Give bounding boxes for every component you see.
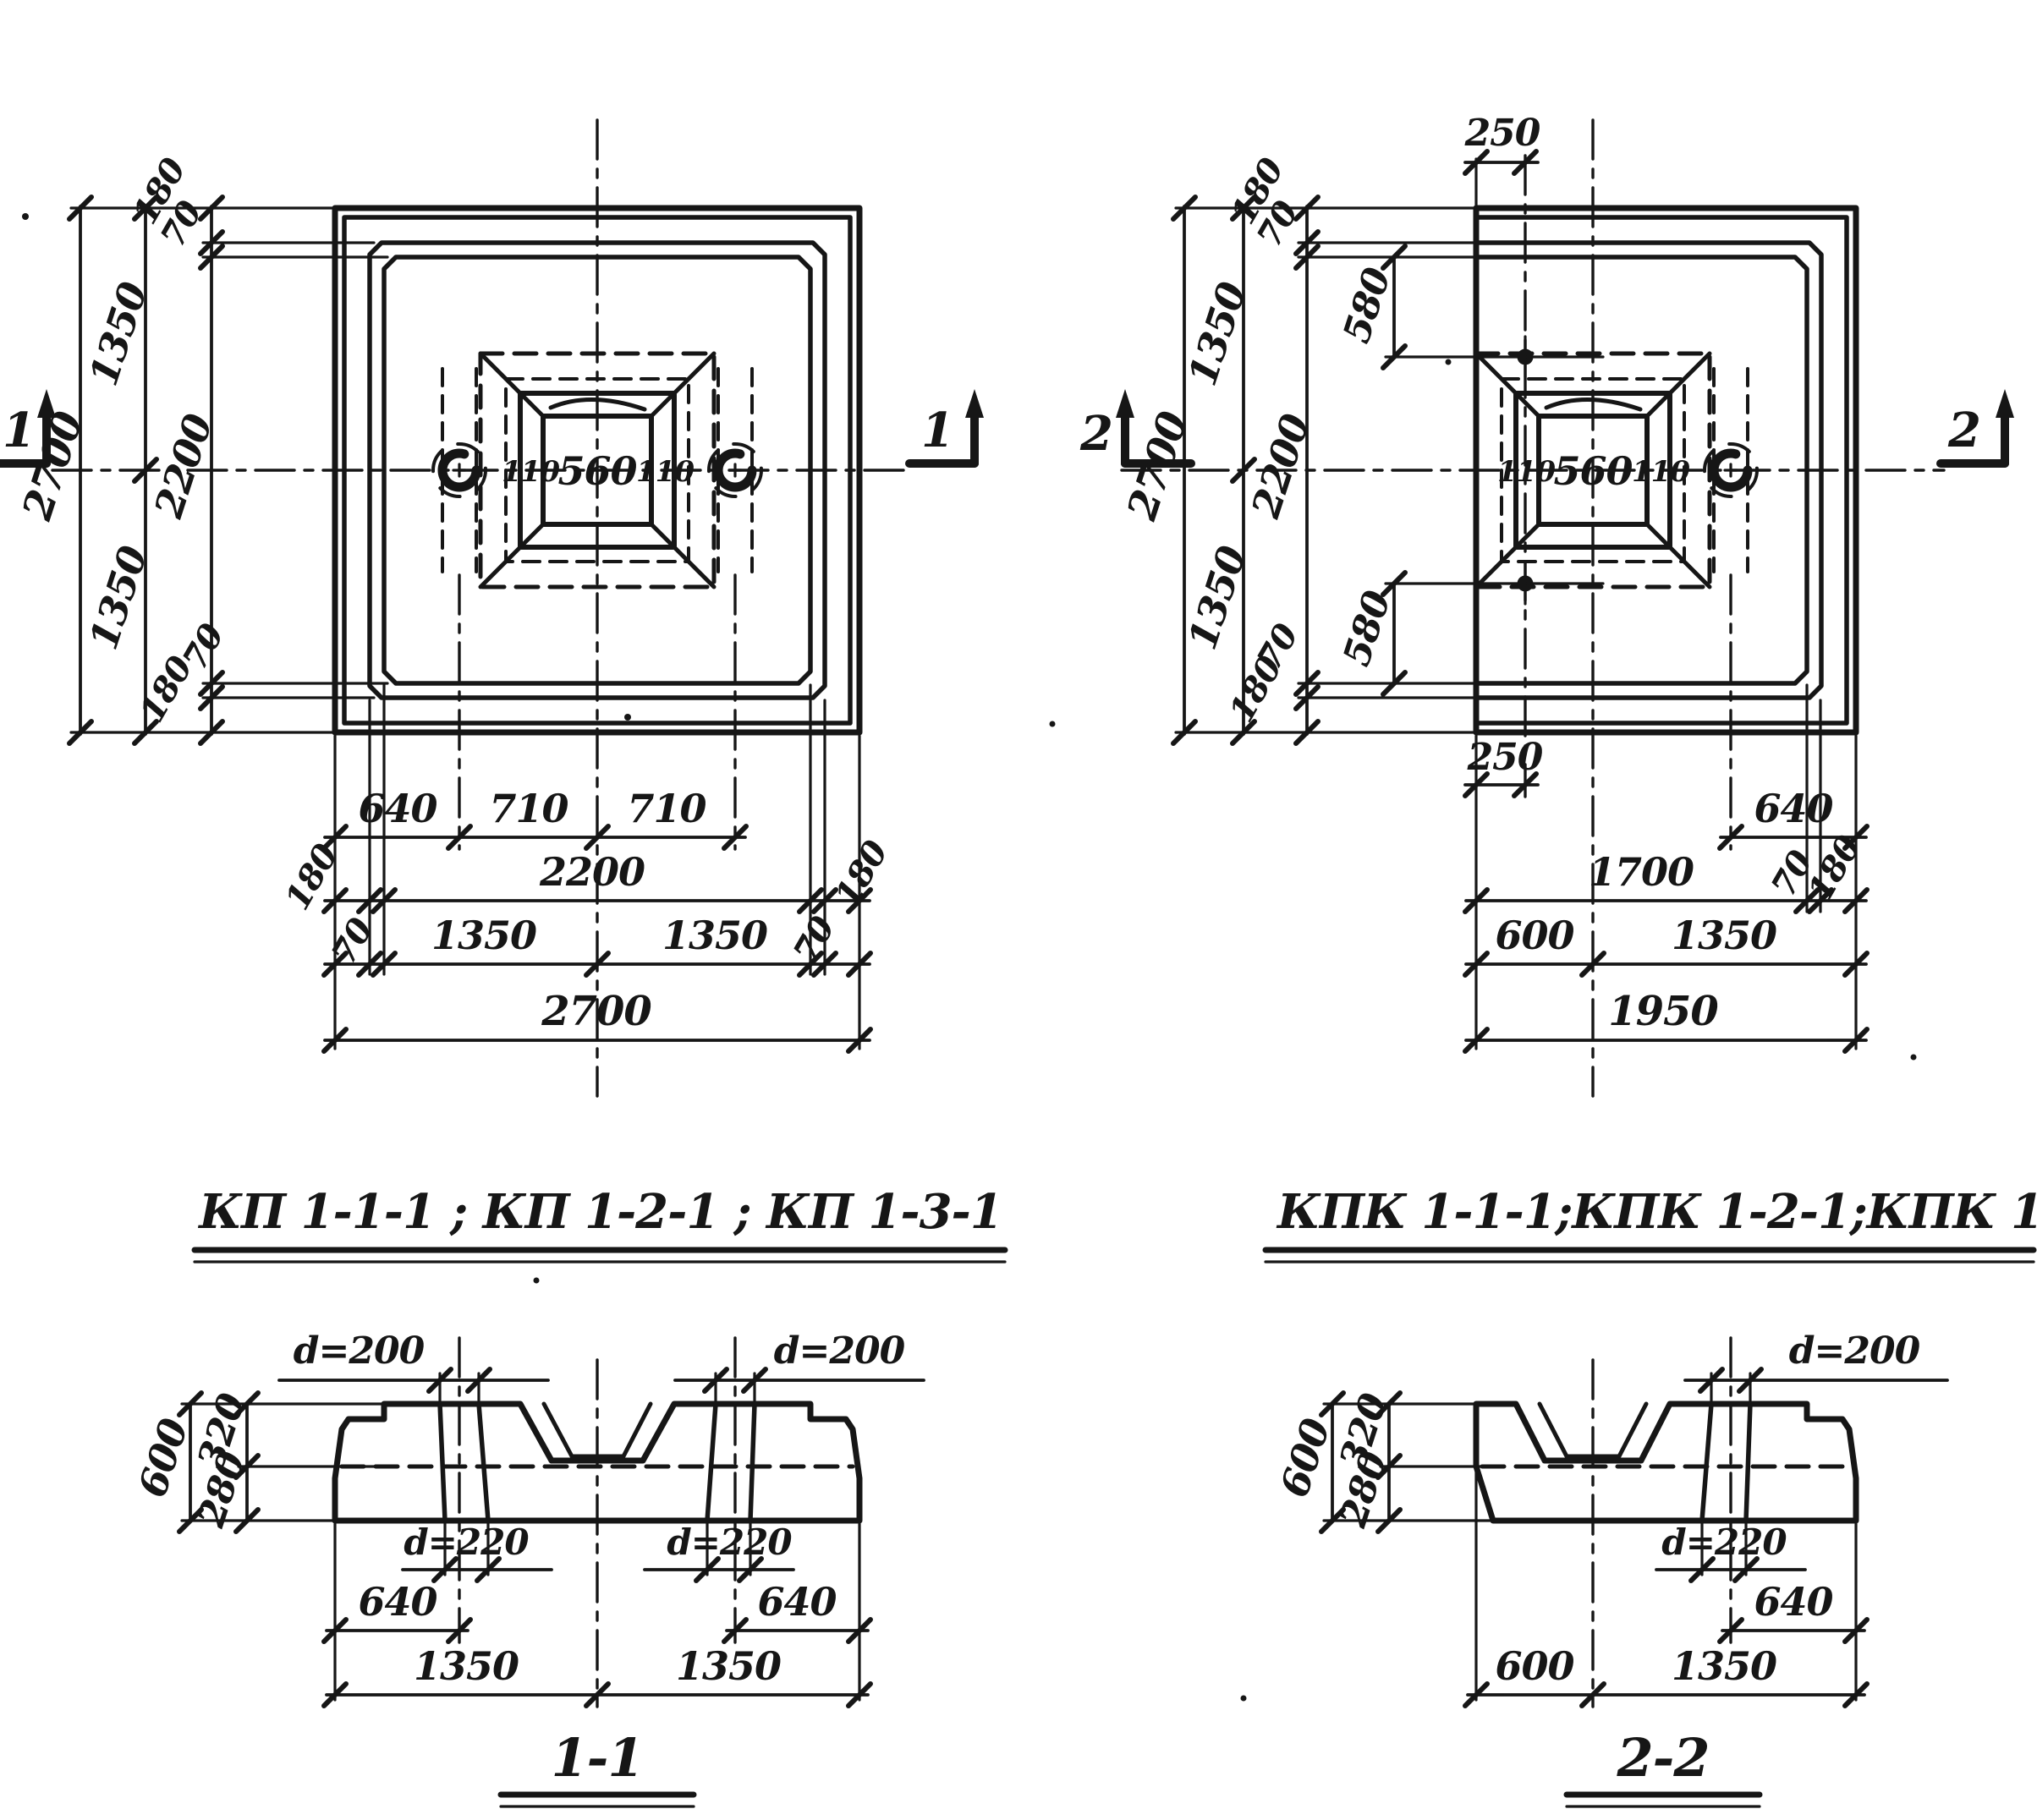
s11-dim-640-left: 640 xyxy=(358,1579,437,1625)
s11-height-dims: 600 320 280 xyxy=(129,1388,398,1533)
s22-loop-pipe xyxy=(1702,1404,1750,1521)
plan-kp: 110 560 110 1 1 xyxy=(0,120,984,1096)
s11-dim-d200-left: d=200 xyxy=(294,1329,426,1373)
plan-kpk: 110 560 110 2 2 250 xyxy=(1079,112,2014,1096)
section-1-1: d=200 d=200 d=220 d=220 600 xyxy=(129,1329,924,1806)
s11-dim-640-right: 640 xyxy=(757,1579,837,1625)
kp-title: КП 1-1-1 ; КП 1-2-1 ; КП 1-3-1 xyxy=(197,1184,1002,1240)
kpk-dim-overall-width: 1950 xyxy=(1608,988,1718,1035)
s22-label: 2-2 xyxy=(1567,1727,1760,1806)
kp-section-mark-left: 1 xyxy=(3,403,35,458)
kpk-lifting-loop xyxy=(1705,369,1757,572)
kpk-socket-wall-left-dim: 110 xyxy=(1497,455,1556,489)
kp-dim-70-right: 70 xyxy=(786,909,843,969)
s22-bottom-dims: 640 600 1350 xyxy=(1465,1472,1867,1706)
kp-left-dimensions: 2700 1350 1350 2200 180 70 70 180 xyxy=(14,151,387,743)
s22-dim-d200: d=200 xyxy=(1789,1329,1921,1373)
foundation-pad-drawing: 110 560 110 1 1 xyxy=(0,0,2037,1820)
s22-height-dims: 600 320 280 xyxy=(1271,1388,1497,1533)
kp-lifting-loop-left xyxy=(433,369,486,572)
kpk-bottom-dimensions: 250 640 1700 70 180 600 1350 1950 xyxy=(1465,685,1869,1051)
kpk-dim-580-bottom: 580 xyxy=(1335,585,1399,672)
section-2-2: d=200 d=220 600 320 280 640 xyxy=(1271,1329,1947,1806)
kpk-dim-580-top: 580 xyxy=(1335,262,1399,348)
kp-dim-640: 640 xyxy=(358,786,437,831)
kpk-socket-width-dim: 560 xyxy=(1553,448,1633,494)
kp-lifting-loop-right xyxy=(709,369,761,572)
kpk-section-markers: 2 2 xyxy=(1079,389,2014,463)
scan-specks xyxy=(22,213,1917,1702)
s11-dim-1350-left: 1350 xyxy=(414,1643,519,1689)
s22-dim-1350: 1350 xyxy=(1672,1643,1777,1689)
s22-dim-d220: d=220 xyxy=(1661,1521,1787,1563)
s22-section-label: 2-2 xyxy=(1616,1727,1709,1789)
kpk-dim-1350: 1350 xyxy=(1672,913,1777,958)
s22-dim-640: 640 xyxy=(1754,1579,1833,1625)
s22-body-outline xyxy=(1476,1404,1856,1521)
kp-dim-710-right: 710 xyxy=(627,786,706,831)
s22-dim-600-height: 600 xyxy=(1271,1413,1339,1503)
kp-dim-1350-left: 1350 xyxy=(431,913,537,958)
kp-socket-width-dim: 560 xyxy=(557,448,637,494)
s22-pipe-top-dim: d=200 xyxy=(1685,1329,1947,1401)
kpk-title: КПК 1-1-1;КПК 1-2-1;КПК 1-3-1 xyxy=(1276,1184,2037,1240)
kp-socket-wall-right-dim: 110 xyxy=(636,455,695,489)
s11-label: 1-1 xyxy=(501,1727,694,1806)
kp-dim-1350-right: 1350 xyxy=(662,913,768,958)
kpk-top-dimension-250: 250 xyxy=(1464,112,1541,206)
kpk-dim-hole-offset-top: 250 xyxy=(1464,112,1541,155)
s11-dim-d220-right: d=220 xyxy=(667,1521,792,1563)
kp-dim-2200-width: 2200 xyxy=(539,849,645,895)
kpk-left-dimensions: 2700 1350 1350 2200 180 70 70 180 580 58… xyxy=(1118,151,1476,743)
s11-dim-d220-left: d=220 xyxy=(404,1521,529,1563)
kpk-dim-1700: 1700 xyxy=(1589,849,1694,895)
s11-pipe-top-dims: d=200 d=200 xyxy=(279,1329,924,1401)
s11-dim-d200-right: d=200 xyxy=(774,1329,906,1373)
kpk-dim-640-loop: 640 xyxy=(1754,786,1833,831)
kpk-section-mark-right: 2 xyxy=(1947,403,1980,458)
kp-bottom-dimensions: 640 710 710 180 2200 180 70 1350 1350 70… xyxy=(277,685,897,1051)
kpk-lifting-loops xyxy=(1705,369,1757,572)
drawing-sheet: 110 560 110 1 1 xyxy=(0,0,2037,1820)
kp-section-mark-right: 1 xyxy=(921,403,953,458)
kp-socket-wall-left-dim: 110 xyxy=(502,455,560,489)
kpk-dim-600: 600 xyxy=(1495,913,1574,958)
s11-dim-600: 600 xyxy=(129,1413,197,1503)
s11-section-label: 1-1 xyxy=(551,1727,643,1789)
s11-dim-1350-right: 1350 xyxy=(676,1643,782,1689)
kp-section-markers: 1 1 xyxy=(0,389,984,463)
kp-dim-overall-width: 2700 xyxy=(541,988,651,1035)
kpk-socket-wall-right-dim: 110 xyxy=(1632,455,1690,489)
titles: КП 1-1-1 ; КП 1-2-1 ; КП 1-3-1 КПК 1-1-1… xyxy=(195,1184,2037,1262)
kpk-dim-hole-offset-bottom: 250 xyxy=(1467,736,1544,779)
s22-dim-600: 600 xyxy=(1495,1643,1574,1689)
kpk-section-mark-left: 2 xyxy=(1079,406,1112,462)
kp-dim-710-left: 710 xyxy=(489,786,568,831)
